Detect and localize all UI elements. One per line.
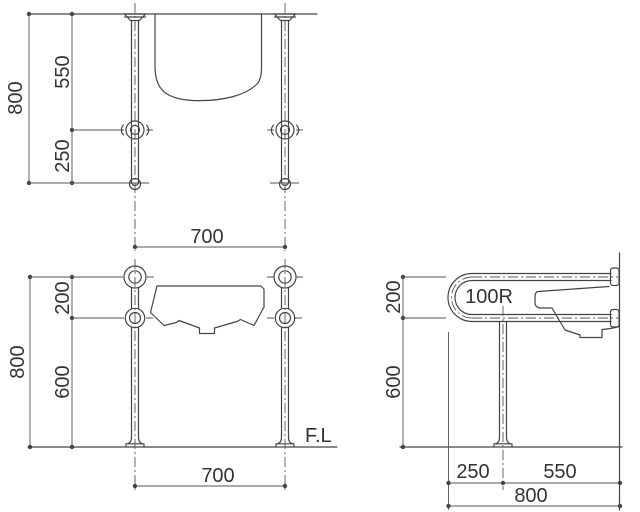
grab-bar-installation-drawing: 800 550 250	[0, 0, 640, 512]
plan-view: 800 550 250	[5, 3, 317, 251]
side-washbasin-outline	[535, 287, 620, 338]
side-support-post	[494, 306, 512, 490]
plan-left-rail	[121, 3, 148, 251]
side-dim-200-label: 200	[383, 280, 405, 313]
side-dim-200-600: 200 600	[383, 275, 446, 449]
front-dim-800: 800	[7, 275, 32, 449]
front-dim-600-label: 600	[52, 365, 74, 398]
side-dim-600-label: 600	[383, 365, 405, 398]
side-dim-250-550: 250 550	[446, 332, 622, 510]
side-view: 100R 200 600 250 550 800	[383, 253, 622, 510]
front-right-post	[274, 259, 296, 490]
plan-dim-700-label: 700	[190, 226, 223, 248]
plan-dim-700: 700	[133, 226, 287, 249]
front-dim-700: 700	[133, 465, 287, 488]
floor-level-label: F.L	[305, 425, 332, 447]
side-dim-250-label: 250	[456, 461, 489, 483]
plan-dim-550-label: 550	[52, 55, 74, 88]
bend-radius-label: 100R	[465, 286, 513, 308]
plan-dim-250-label: 250	[52, 139, 74, 172]
front-dim-700-label: 700	[201, 465, 234, 487]
side-dim-550-label: 550	[543, 461, 576, 483]
plan-dim-800: 800	[5, 12, 31, 185]
front-dim-200-600: 200 600	[30, 275, 303, 449]
front-washbasin-outline	[151, 286, 265, 334]
technical-drawing-page: 800 550 250	[0, 0, 640, 512]
side-dim-800: 800	[446, 485, 622, 508]
front-dim-800-label: 800	[7, 345, 29, 378]
plan-washbasin-outline	[155, 14, 262, 101]
plan-dim-800-label: 800	[5, 81, 27, 114]
side-dim-800-label: 800	[514, 485, 547, 507]
front-left-post	[124, 259, 146, 490]
plan-right-rail	[271, 3, 298, 251]
front-dim-200-label: 200	[52, 281, 74, 314]
front-view: F.L 800 200 600	[7, 259, 337, 490]
